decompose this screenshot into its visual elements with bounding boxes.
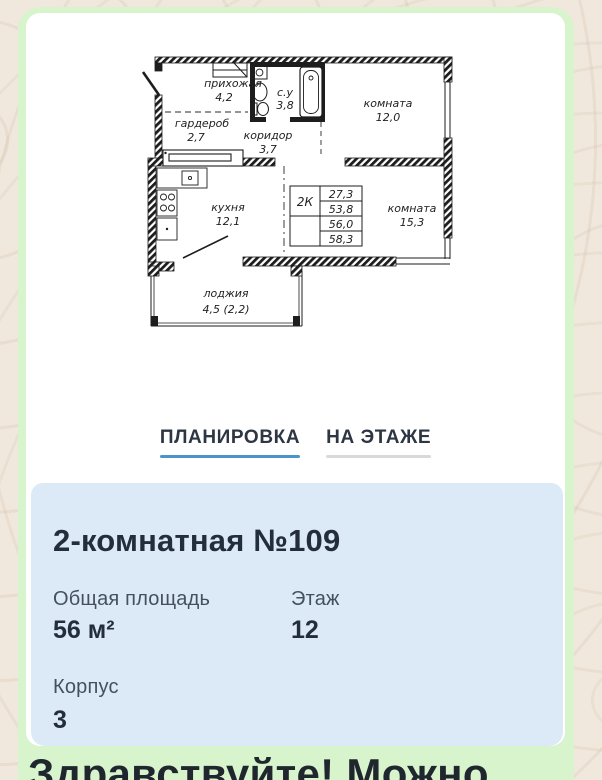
floor-value: 12 [291, 616, 319, 645]
tab-na-etazhe[interactable]: НА ЭТАЖЕ [326, 427, 431, 458]
tab-planirovka-underline [160, 455, 300, 458]
svg-text:4,5 (2,2): 4,5 (2,2) [202, 303, 249, 316]
svg-text:4,2: 4,2 [215, 91, 233, 104]
svg-text:3,8: 3,8 [276, 99, 294, 112]
apartment-title: 2-комнатная №109 [53, 523, 340, 559]
chat-message-preview: Здравствуйте! Можно [28, 750, 588, 780]
plan-kitchen-fixtures [157, 168, 207, 240]
floor-label: Этаж [291, 588, 340, 611]
svg-text:комната: комната [388, 202, 437, 215]
svg-text:12,0: 12,0 [376, 111, 401, 124]
svg-text:12,1: 12,1 [216, 215, 241, 228]
svg-text:2К: 2К [297, 195, 314, 209]
svg-text:53,8: 53,8 [329, 203, 354, 216]
tab-bar: ПЛАНИРОВКА НА ЭТАЖЕ [26, 427, 565, 458]
tab-na-etazhe-label: НА ЭТАЖЕ [326, 427, 431, 449]
plan-area-table-text: 2К 27,3 53,8 56,0 58,3 [297, 188, 353, 246]
svg-text:комната: комната [364, 97, 413, 110]
svg-text:с.у: с.у [277, 86, 294, 99]
apartment-info-panel: 2-комнатная №109 Общая площадь 56 м² Эта… [31, 483, 563, 746]
plan-hall-closet [213, 63, 247, 77]
tab-planirovka-label: ПЛАНИРОВКА [160, 427, 300, 449]
tab-planirovka[interactable]: ПЛАНИРОВКА [160, 427, 300, 458]
svg-text:прихожая: прихожая [204, 77, 262, 90]
building-label: Корпус [53, 676, 119, 699]
apartment-card: 2К 27,3 53,8 56,0 58,3 прихожая 4,2 с.у … [26, 13, 565, 746]
svg-text:кухня: кухня [211, 201, 245, 214]
plan-wardrobe [163, 150, 243, 166]
screen: 2К 27,3 53,8 56,0 58,3 прихожая 4,2 с.у … [0, 0, 602, 780]
svg-text:56,0: 56,0 [329, 218, 354, 231]
tab-na-etazhe-underline [326, 455, 431, 458]
total-area-value: 56 м² [53, 616, 115, 645]
svg-text:2,7: 2,7 [187, 131, 205, 144]
svg-text:коридор: коридор [244, 129, 293, 142]
svg-text:15,3: 15,3 [400, 216, 425, 229]
total-area-label: Общая площадь [53, 588, 210, 611]
svg-text:27,3: 27,3 [329, 188, 354, 201]
svg-text:58,3: 58,3 [329, 233, 354, 246]
building-value: 3 [53, 706, 67, 735]
svg-text:гардероб: гардероб [175, 117, 230, 130]
svg-text:лоджия: лоджия [202, 287, 248, 300]
svg-text:3,7: 3,7 [259, 143, 277, 156]
floor-plan-image: 2К 27,3 53,8 56,0 58,3 прихожая 4,2 с.у … [138, 50, 470, 338]
